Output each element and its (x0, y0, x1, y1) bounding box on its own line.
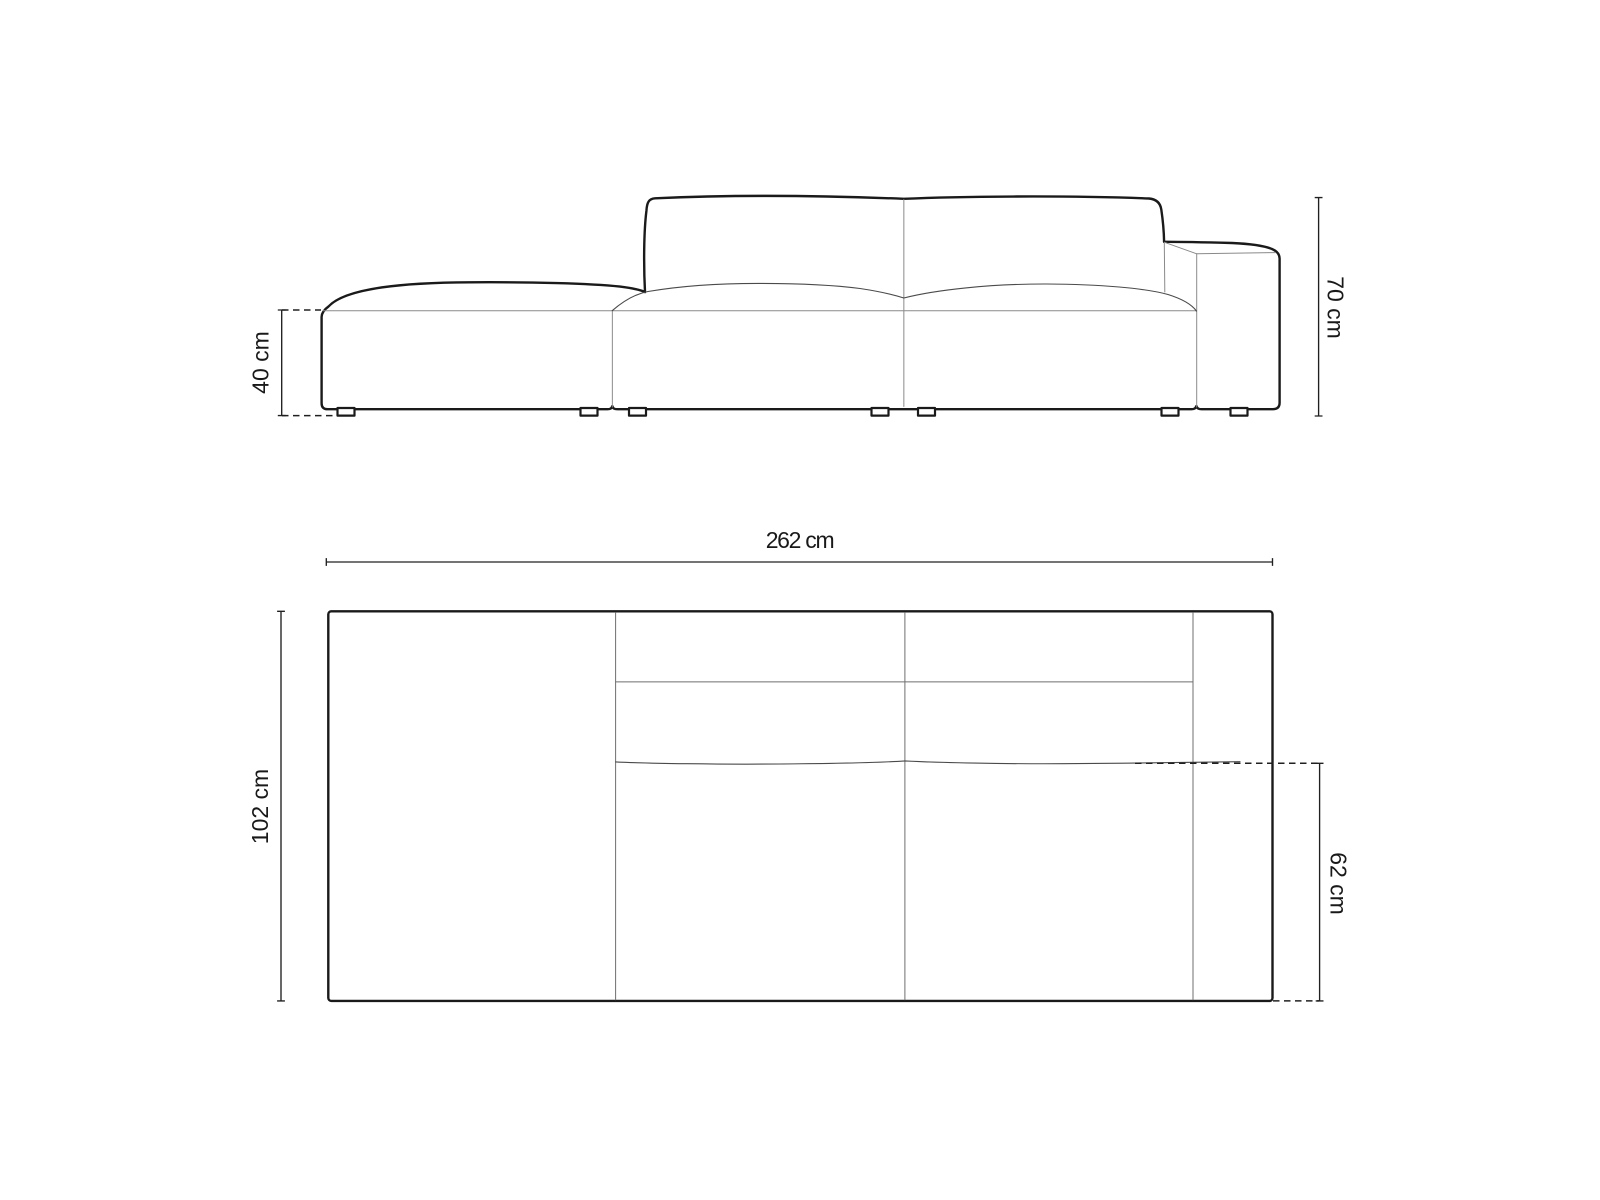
svg-text:40 cm: 40 cm (248, 331, 274, 394)
svg-text:102 cm: 102 cm (247, 769, 273, 844)
svg-text:262 cm: 262 cm (766, 527, 834, 553)
svg-text:70 cm: 70 cm (1323, 276, 1349, 339)
svg-text:62 cm: 62 cm (1326, 852, 1352, 915)
